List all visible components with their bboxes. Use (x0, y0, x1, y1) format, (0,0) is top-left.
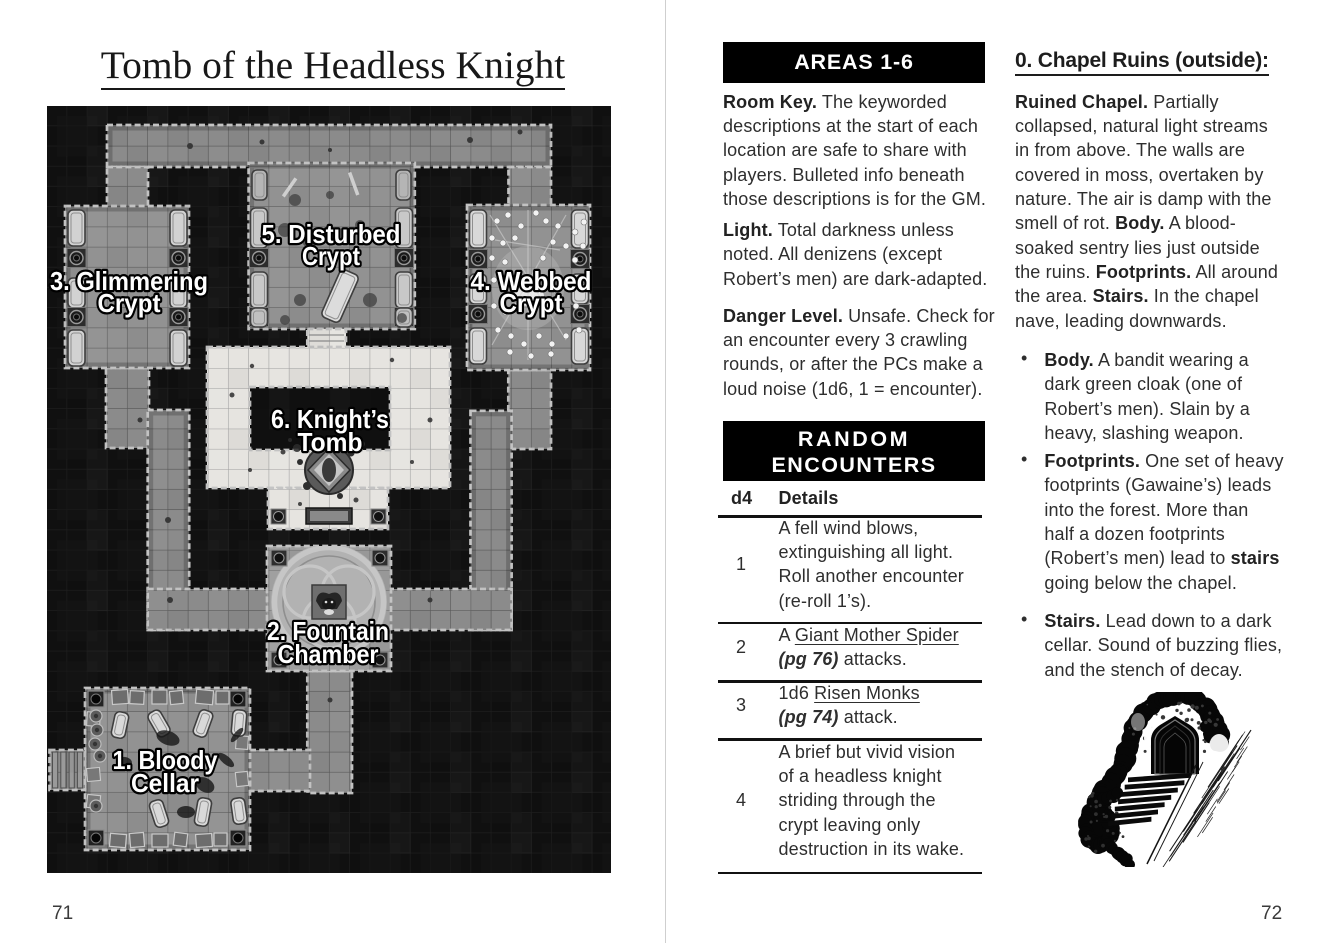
svg-text:Crypt: Crypt (302, 241, 360, 271)
svg-text:Crypt: Crypt (98, 288, 161, 318)
svg-text:Cellar: Cellar (131, 768, 199, 798)
svg-text:Tomb: Tomb (298, 427, 363, 457)
svg-text:Chamber: Chamber (278, 639, 379, 669)
svg-text:Crypt: Crypt (500, 288, 563, 318)
